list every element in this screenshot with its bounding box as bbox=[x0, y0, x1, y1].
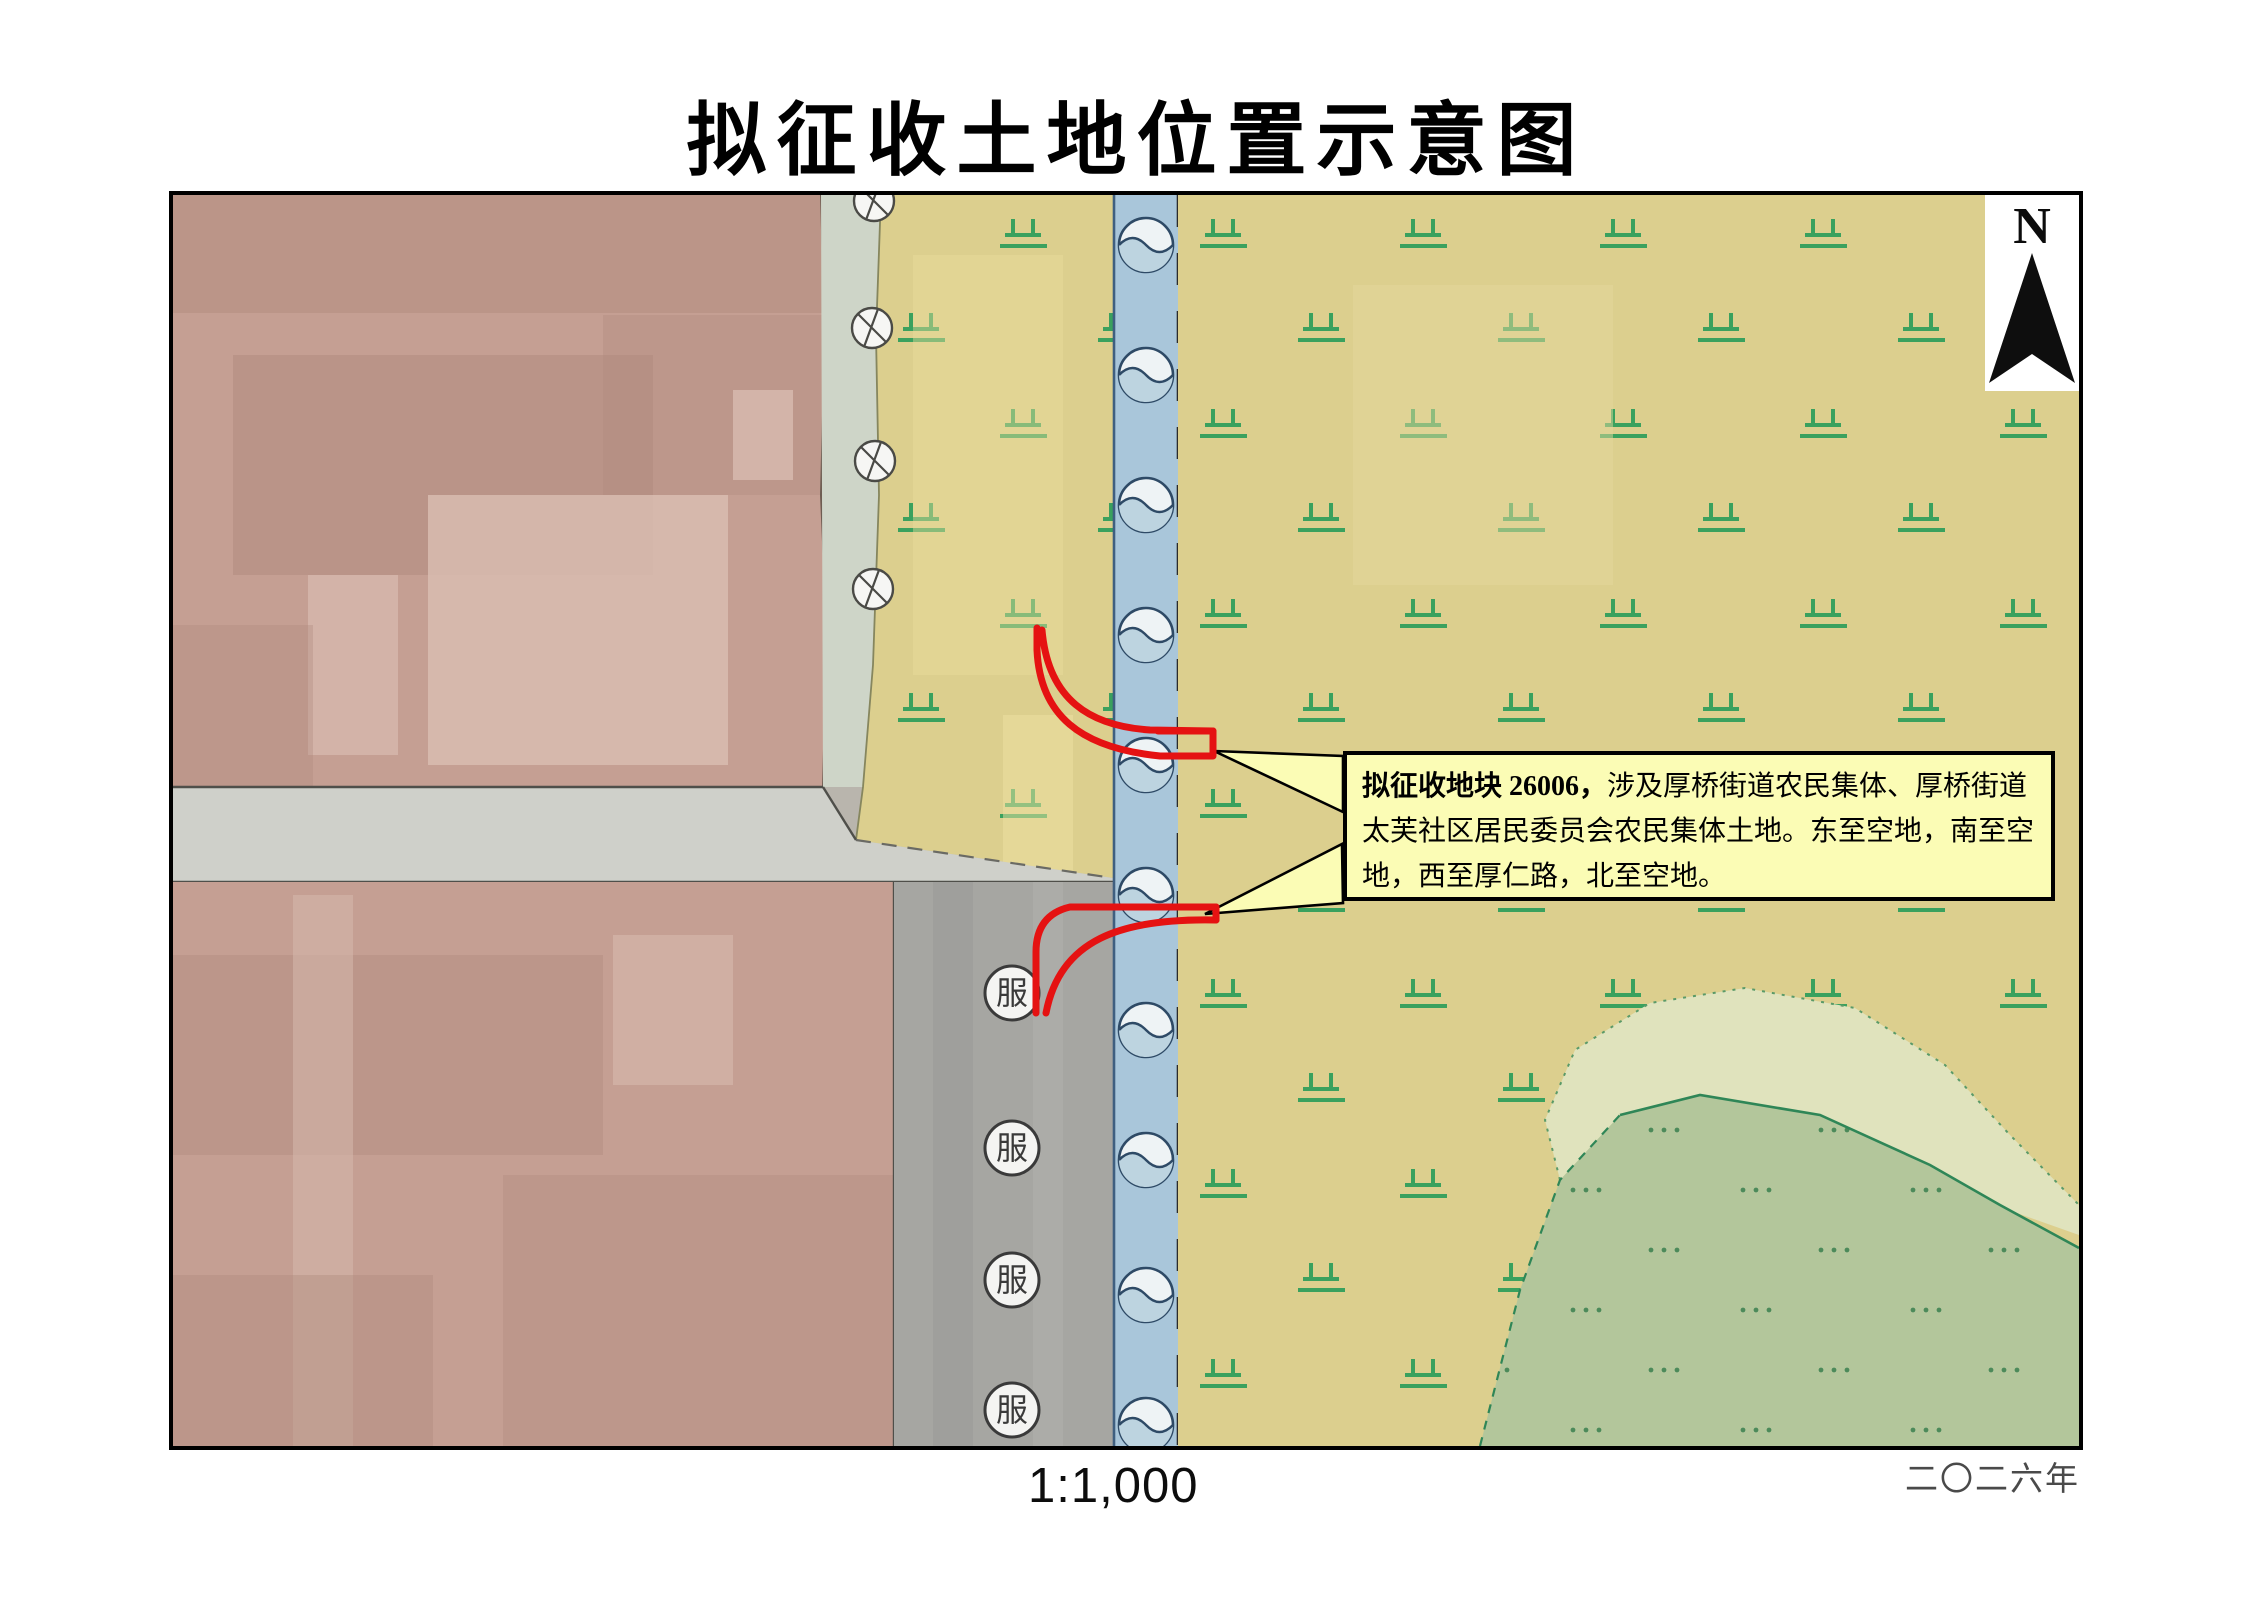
page-title: 拟征收土地位置示意图 bbox=[14, 76, 2245, 192]
page: { "page": { "title": "拟征收土地位置示意图" }, "ma… bbox=[0, 0, 2245, 1608]
farmland-wedge bbox=[856, 195, 1113, 895]
service-icon: 服 bbox=[996, 1130, 1028, 1166]
north-label: N bbox=[2013, 198, 2051, 255]
annotation-box: 拟征收地块 26006，涉及厚桥街道农民集体、厚桥街道太芙社区居民委员会农民集体… bbox=[1343, 751, 2055, 901]
north-arrow: N bbox=[1985, 195, 2079, 391]
annotation-bold: 拟征收地块 26006， bbox=[1362, 771, 1607, 802]
builtup-area-lower bbox=[173, 882, 894, 1446]
scale-label: 1:1,000 bbox=[1028, 1458, 1199, 1514]
service-icon: 服 bbox=[996, 975, 1028, 1011]
service-icon: 服 bbox=[996, 1262, 1028, 1298]
builtup-area-upper bbox=[173, 195, 827, 787]
map-canvas: 服 服 服 服 N 拟征收地块 26006，涉及厚桥街道农民集体、厚桥街 bbox=[169, 191, 2083, 1450]
year-label: 二〇二六年 bbox=[1880, 1452, 2080, 1500]
service-icon: 服 bbox=[996, 1392, 1028, 1428]
